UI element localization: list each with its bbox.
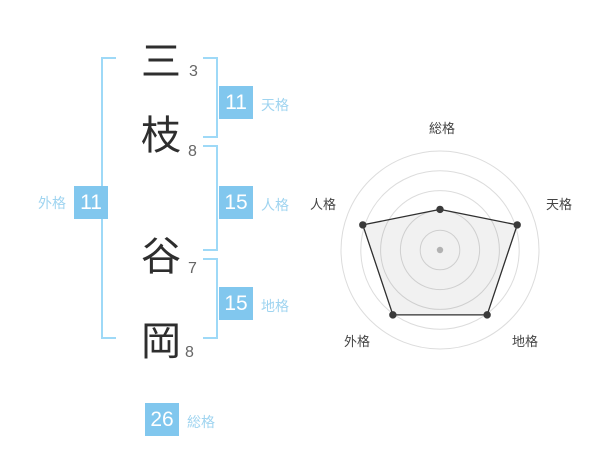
radar-axis-label: 外格	[344, 334, 370, 349]
radar-data-point	[514, 221, 521, 228]
radar-chart-svg: 総格天格地格外格人格	[295, 96, 595, 376]
radar-axis-label: 人格	[310, 197, 336, 212]
radar-chart: 総格天格地格外格人格	[295, 96, 595, 376]
surname-char-1: 三	[141, 40, 181, 84]
jinkaku-badge: 15	[219, 186, 253, 219]
stroke-count-given-2: 8	[185, 344, 194, 362]
jinkaku-label: 人格	[261, 195, 289, 215]
soukaku-badge: 26	[145, 403, 179, 436]
radar-data-polygon	[363, 209, 517, 315]
radar-axis-label: 天格	[546, 197, 572, 212]
gaikaku-badge: 11	[74, 186, 108, 219]
stroke-count-surname-1: 3	[189, 63, 198, 81]
chikaku-badge: 15	[219, 287, 253, 320]
chikaku-label: 地格	[261, 296, 289, 316]
stroke-count-surname-2: 8	[188, 143, 197, 161]
tenkaku-bracket	[203, 57, 218, 138]
jinkaku-bracket	[203, 145, 218, 251]
surname-char-2: 枝	[141, 114, 181, 158]
radar-data-point	[359, 221, 366, 228]
gaikaku-label: 外格	[38, 193, 66, 213]
tenkaku-label: 天格	[261, 95, 289, 115]
given-char-1: 谷	[141, 235, 181, 279]
soukaku-label: 総格	[187, 412, 215, 432]
radar-axis-label: 総格	[429, 121, 455, 136]
radar-data-point	[389, 311, 396, 318]
radar-axis-label: 地格	[512, 334, 538, 349]
stroke-count-given-1: 7	[188, 260, 197, 278]
radar-data-point	[436, 206, 443, 213]
tenkaku-badge: 11	[219, 86, 253, 119]
chikaku-bracket	[203, 258, 218, 339]
name-analysis-screen: 三 枝 谷 岡 3 8 7 8 外格 11 11 天格 15 人格 15 地格 …	[0, 0, 600, 470]
radar-data-point	[483, 311, 490, 318]
given-char-2: 岡	[141, 320, 181, 364]
